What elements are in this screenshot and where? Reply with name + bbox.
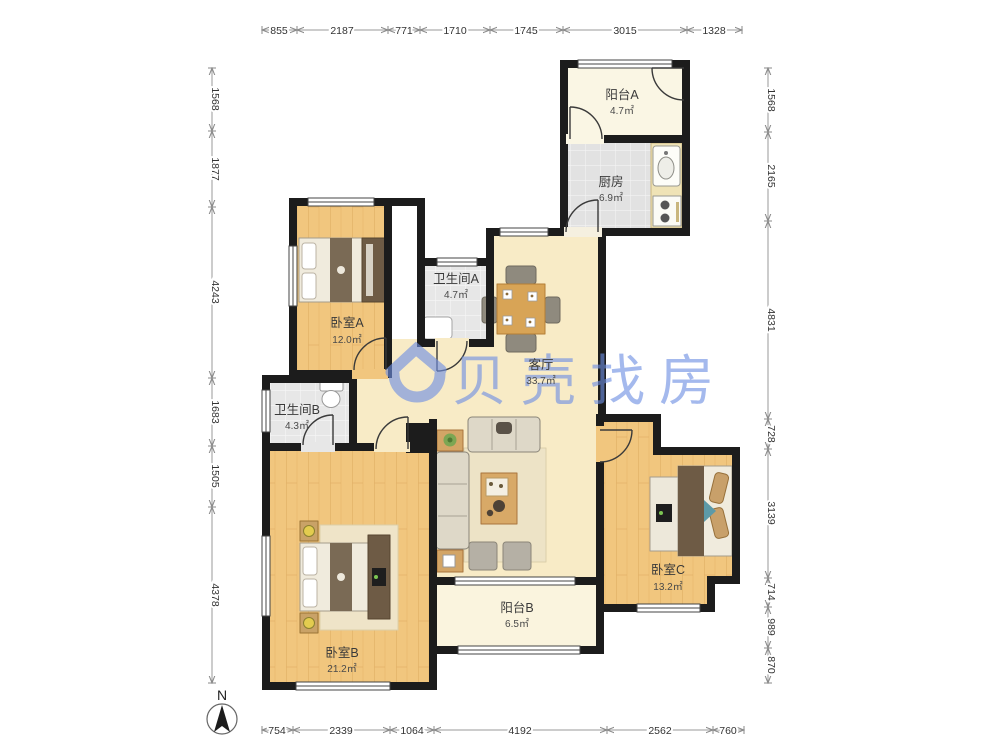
dim-value: 3139 xyxy=(765,501,777,525)
bedroom-c-area: 13.2㎡ xyxy=(653,581,682,593)
wall-closet-block xyxy=(406,423,437,453)
dim-right-labels: 1568 2165 4831 728 3139 714 989 870 xyxy=(765,88,777,674)
bedroom-b-name: 卧室B xyxy=(325,645,358,660)
dim-value: 754 xyxy=(268,725,286,737)
watermark-text: 贝壳找房 xyxy=(452,350,728,412)
balcony-b-floor xyxy=(433,581,600,650)
dim-value: 870 xyxy=(765,656,777,674)
sofa-set xyxy=(436,417,546,572)
window-bedroom-b-bottom xyxy=(296,682,390,690)
dim-bottom-labels: 754 2339 1064 4192 2562 760 xyxy=(268,725,737,737)
dim-top-labels: 855 2187 771 1710 1745 3015 1328 xyxy=(270,25,726,37)
window-balcony-a-top xyxy=(578,60,672,68)
window-bedroom-b-left xyxy=(262,536,270,616)
dim-value: 4831 xyxy=(765,308,777,332)
floor-plan: 贝壳找房 阳台A 4.7㎡ 厨房 6.9㎡ 卫生间A 4.7㎡ 卧室A 12.0… xyxy=(0,0,1000,750)
dim-value: 1683 xyxy=(209,400,221,424)
kitchen-counter xyxy=(651,143,682,228)
sofa-left xyxy=(436,452,469,549)
dim-value: 989 xyxy=(765,618,777,636)
bathroom-a-name: 卫生间A xyxy=(433,272,480,286)
dim-value: 2165 xyxy=(765,164,777,188)
bathroom-b-area: 4.3㎡ xyxy=(285,420,309,432)
dim-value: 2339 xyxy=(329,725,353,737)
window-bedroom-a-top xyxy=(308,198,374,206)
balcony-a-area: 4.7㎡ xyxy=(610,105,634,117)
kitchen-area: 6.9㎡ xyxy=(599,192,623,204)
north-arrow-icon xyxy=(214,705,230,732)
north-label: N xyxy=(217,687,227,703)
bedroom-b-bed xyxy=(300,521,398,633)
bathroom-a-area: 4.7㎡ xyxy=(444,289,468,301)
ottoman-right xyxy=(503,542,531,570)
bedroom-b-area: 21.2㎡ xyxy=(327,663,356,675)
bedroom-c-bed xyxy=(650,466,732,556)
balcony-b-area: 6.5㎡ xyxy=(505,618,529,630)
dim-value: 1568 xyxy=(209,87,221,111)
bedroom-a-area: 12.0㎡ xyxy=(332,334,361,346)
bedroom-a-wardrobe xyxy=(362,238,385,302)
window-living-top xyxy=(500,228,548,236)
window-balcony-b-top xyxy=(455,577,575,585)
wall-step xyxy=(388,202,421,262)
north-compass: N xyxy=(207,687,237,734)
window-bathroom-b-left xyxy=(262,390,270,432)
dim-value: 760 xyxy=(719,725,737,737)
balcony-a-name: 阳台A xyxy=(605,87,639,102)
bedroom-c-name: 卧室C xyxy=(651,562,685,577)
dim-left-labels: 1568 1877 4243 1683 1505 4378 xyxy=(209,87,221,607)
dim-value: 2187 xyxy=(330,25,354,37)
dim-value: 1328 xyxy=(702,25,726,37)
living-room-area: 33.7㎡ xyxy=(526,375,555,387)
dim-value: 4243 xyxy=(209,280,221,304)
bedroom-a-bed xyxy=(299,238,385,302)
bedroom-c-tv xyxy=(656,504,672,522)
dim-value: 4378 xyxy=(209,583,221,607)
living-room-name: 客厅 xyxy=(528,357,553,372)
bathroom-a-washer xyxy=(423,317,452,339)
kitchen-sink xyxy=(658,157,674,179)
window-balcony-b-bottom xyxy=(458,646,580,654)
dim-value: 1877 xyxy=(209,157,221,181)
dim-value: 771 xyxy=(395,25,413,37)
dim-value: 1745 xyxy=(514,25,538,37)
dim-value: 4192 xyxy=(508,725,532,737)
dim-value: 1710 xyxy=(443,25,467,37)
balcony-b-name: 阳台B xyxy=(500,600,533,615)
dim-value: 3015 xyxy=(613,25,637,37)
window-bedroom-a-left xyxy=(289,246,297,306)
dim-value: 1568 xyxy=(765,88,777,112)
dim-value: 1505 xyxy=(209,464,221,488)
dim-value: 855 xyxy=(270,25,288,37)
dim-value: 714 xyxy=(765,583,777,601)
window-bathroom-a-top xyxy=(437,258,477,266)
bedroom-a-name: 卧室A xyxy=(330,315,364,330)
dim-value: 2562 xyxy=(648,725,672,737)
dim-value: 1064 xyxy=(400,725,424,737)
kitchen-name: 厨房 xyxy=(598,174,623,189)
bathroom-b-name: 卫生间B xyxy=(274,403,320,417)
ottoman-left xyxy=(469,542,497,570)
dim-value: 728 xyxy=(765,425,777,443)
window-bedroom-c-bottom xyxy=(637,604,700,612)
